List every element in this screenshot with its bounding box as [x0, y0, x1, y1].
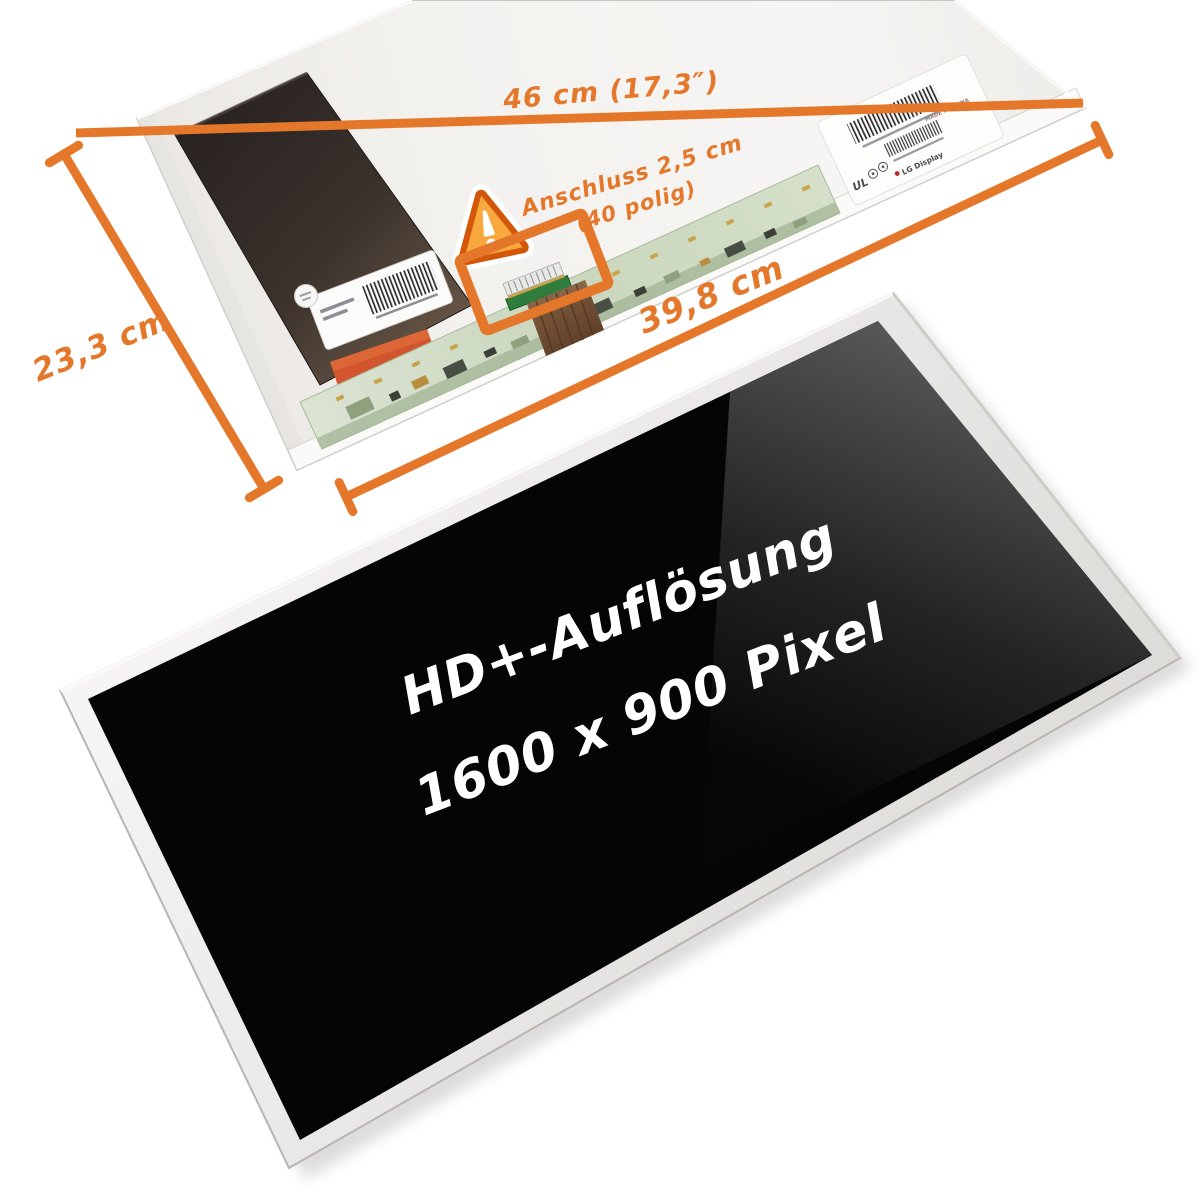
round-sticker	[295, 285, 318, 308]
product-photo-scene: UL LG Display MADE IN CHINA HD+-Auflösun…	[0, 0, 1200, 1200]
lcd-panel-annotated-diagram: UL LG Display MADE IN CHINA HD+-Auflösun…	[0, 0, 1200, 1200]
dimension-label-23cm: 23,3 cm	[28, 302, 176, 390]
